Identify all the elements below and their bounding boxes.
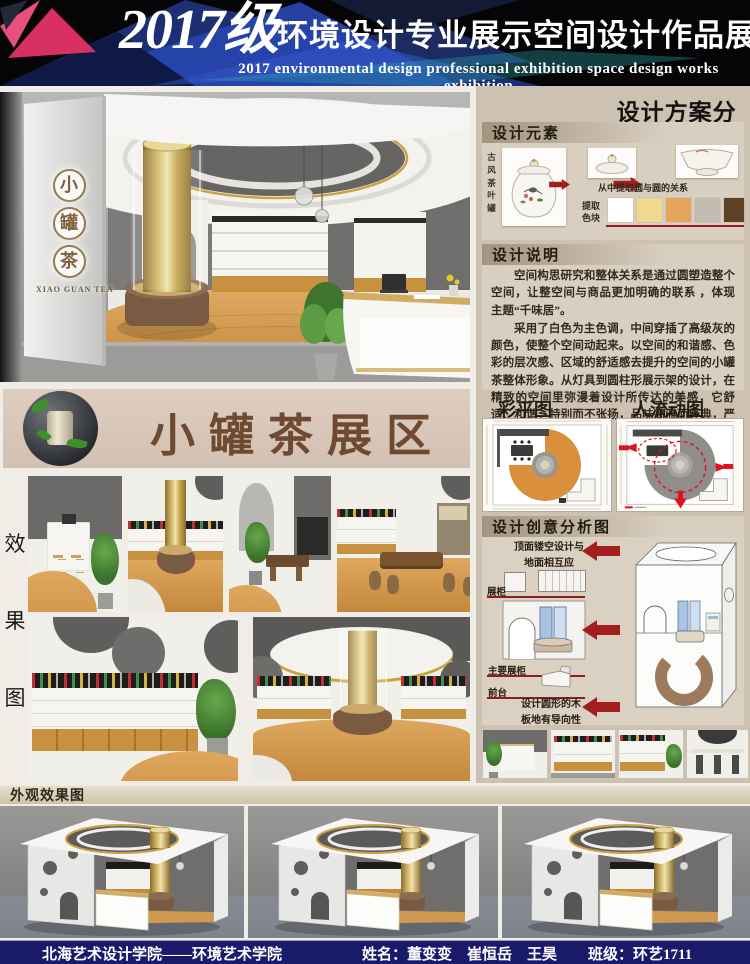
- display-case-sketch: [504, 572, 526, 592]
- render-edge-shadow: [0, 92, 22, 382]
- xiao-guan-tea-logo: 小 罐 茶 XIAO GUAN TEA: [36, 164, 102, 294]
- note-top: 顶面镂空设计与地面相互应: [514, 540, 584, 572]
- jar-detail-image: [676, 145, 738, 178]
- effects-char: 效: [3, 528, 27, 558]
- description-paragraph: 空间构思研究和整体关系是通过圆塑造整个空间，让整空间与商品更加明确的联系 ，体现…: [491, 268, 735, 320]
- design-elements-body: 古风茶叶罐: [482, 143, 744, 240]
- palette-underline: [606, 225, 744, 227]
- strip-photo-desk: [483, 730, 547, 778]
- exterior-section-title: 外观效果图: [0, 785, 85, 805]
- exterior-render-2: [248, 806, 498, 938]
- title-year: 2017级: [119, 2, 277, 58]
- section-header: 设计创意分析图: [482, 516, 744, 537]
- palette-swatch: [724, 198, 744, 222]
- tea-can-badge: [23, 391, 98, 466]
- section-header: 设计元素: [482, 122, 744, 143]
- section-header: 设计说明: [482, 244, 744, 265]
- zone-banner-title: 小罐茶展区: [115, 399, 466, 464]
- note-bottom: 设计圆形的木板地有导向性: [518, 697, 584, 729]
- color-plan-block: 彩平图: [482, 396, 612, 512]
- flow-plan-title: 人流动图: [616, 396, 744, 418]
- main-display-sketch: [502, 600, 586, 660]
- section-design-elements: 设计元素 古风茶叶罐: [482, 122, 744, 240]
- flow-plan-block: 人流动图: [616, 396, 744, 512]
- footer-names: 姓名：董变变 崔恒岳 王昊: [362, 943, 557, 964]
- render-photo-tea-table: [337, 476, 470, 612]
- render-photo-shelf-wall: [28, 617, 238, 781]
- footer-class: 班级：环艺1711: [588, 943, 692, 964]
- jar-lid-image: [588, 148, 636, 178]
- label-underline: [487, 596, 585, 598]
- poster-title: 2017级 环境设计专业展示空间设计作品展: [130, 2, 746, 58]
- front-desk-sketch: [540, 665, 572, 689]
- jar-label-vertical: 古风茶叶罐: [486, 151, 497, 215]
- booth-3d-sketch: [628, 537, 744, 719]
- relation-caption: 从中提取圆与圆的关系: [598, 181, 688, 194]
- effects-char: 果: [3, 605, 27, 635]
- main-interior-render: 小 罐 茶 XIAO GUAN TEA: [22, 92, 470, 382]
- effects-char: 图: [3, 682, 27, 712]
- render-photo-reception-corner: [28, 476, 122, 612]
- logo-char-circle: 茶: [53, 245, 86, 278]
- logo-char-circle: 罐: [53, 207, 86, 240]
- title-english: 2017 environmental design professional e…: [215, 61, 742, 86]
- palette-label: 提取色块: [582, 201, 602, 224]
- render-photo-tea-corner: [229, 476, 331, 612]
- palette-swatch: [695, 198, 720, 222]
- logo-char-circle: 小: [53, 169, 86, 202]
- logo-english: XIAO GUAN TEA: [36, 285, 102, 294]
- analysis-column: 设计方案分析 设计元素 古风茶叶罐: [476, 86, 750, 783]
- strip-photo-shelves: [551, 730, 615, 778]
- design-poster: 2017级 环境设计专业展示空间设计作品展 2017 environmental…: [0, 0, 750, 964]
- exterior-render-3: [502, 806, 750, 938]
- exterior-section-bar: 外观效果图: [0, 786, 750, 804]
- color-plan-image: [482, 418, 612, 512]
- footer-school: 北海艺术设计学院——环境艺术学院: [42, 943, 282, 964]
- strip-photo-bar-seats: [687, 730, 748, 778]
- zone-banner: 小罐茶展区: [3, 389, 470, 468]
- section-design-description: 设计说明 空间构思研究和整体关系是通过圆塑造整个空间，让整空间与商品更加明确的联…: [482, 244, 744, 390]
- render-photo-room-overview: [253, 617, 470, 781]
- palette-swatch: [637, 198, 662, 222]
- exterior-render-1: [0, 806, 244, 938]
- strip-photo-shelf-corner: [619, 730, 683, 778]
- title-chinese: 环境设计专业展示空间设计作品展: [277, 18, 750, 58]
- flow-plan-image: [616, 418, 744, 512]
- color-plan-title: 彩平图: [482, 396, 612, 418]
- creative-analysis-body: 顶面镂空设计与地面相互应 展柜 主要展: [482, 537, 744, 725]
- palette-swatch: [608, 198, 633, 222]
- poster-footer: 北海艺术设计学院——环境艺术学院 姓名：董变变 崔恒岳 王昊 班级：环艺1711: [0, 940, 750, 964]
- render-photo-gold-display: [128, 476, 223, 612]
- shelf-sketch: [538, 570, 586, 592]
- poster-header: 2017级 环境设计专业展示空间设计作品展 2017 environmental…: [0, 0, 750, 86]
- section-creative-analysis: 设计创意分析图 顶面镂空设计与地面相互应 展柜: [482, 516, 744, 725]
- design-description-body: 空间构思研究和整体关系是通过圆塑造整个空间，让整空间与商品更加明确的联系 ，体现…: [482, 265, 744, 390]
- palette-swatch: [666, 198, 691, 222]
- effects-vertical-label: 效 果 图: [3, 528, 27, 759]
